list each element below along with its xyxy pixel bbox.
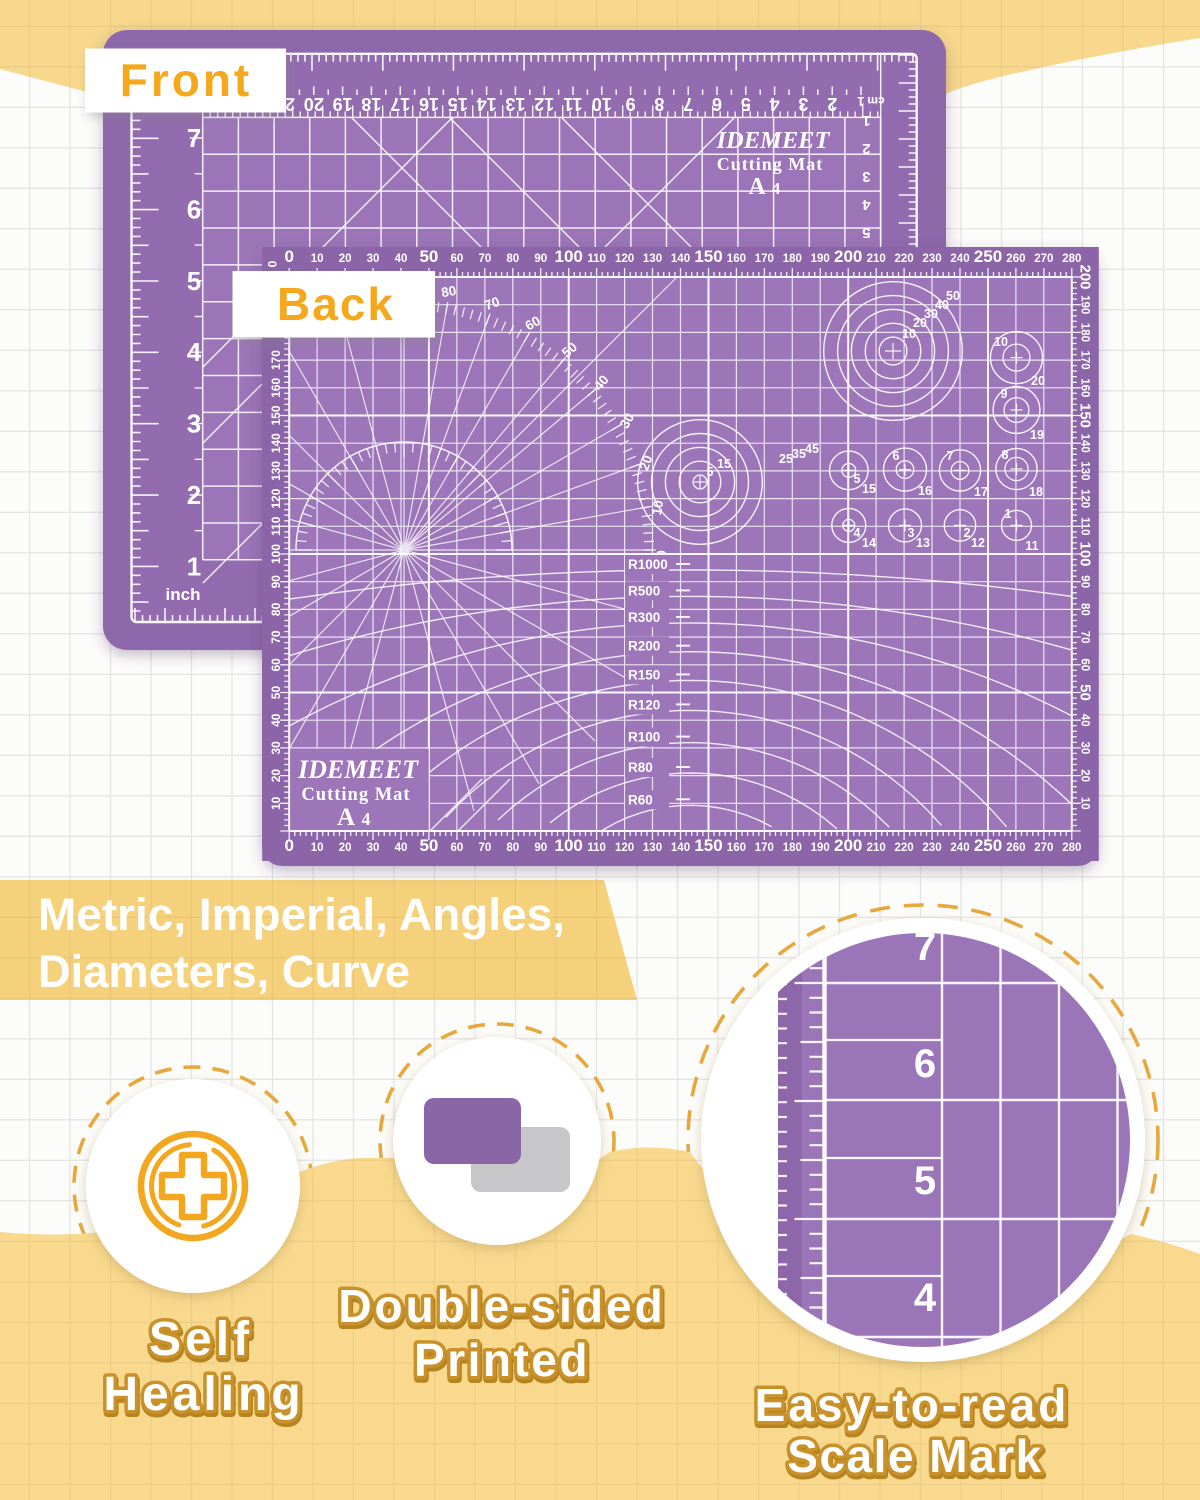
- svg-text:2: 2: [862, 140, 870, 157]
- svg-text:R80: R80: [628, 760, 653, 775]
- svg-text:15: 15: [862, 482, 876, 496]
- svg-text:35: 35: [792, 447, 806, 461]
- svg-text:16: 16: [918, 484, 932, 498]
- svg-text:17: 17: [390, 94, 410, 114]
- svg-text:100: 100: [555, 836, 583, 855]
- svg-text:17: 17: [974, 485, 988, 499]
- svg-text:1: 1: [187, 551, 201, 581]
- svg-text:280: 280: [1062, 842, 1081, 854]
- svg-text:150: 150: [1077, 403, 1094, 428]
- svg-text:130: 130: [269, 461, 283, 481]
- svg-text:130: 130: [643, 253, 662, 265]
- svg-text:7: 7: [683, 94, 693, 114]
- svg-text:20: 20: [339, 253, 352, 265]
- svg-text:30: 30: [1078, 742, 1090, 755]
- svg-text:80: 80: [269, 602, 283, 616]
- svg-text:190: 190: [811, 842, 830, 854]
- svg-text:130: 130: [643, 842, 662, 854]
- svg-text:180: 180: [1078, 323, 1090, 342]
- svg-text:0: 0: [284, 247, 293, 266]
- svg-text:260: 260: [1006, 842, 1025, 854]
- svg-text:40: 40: [269, 713, 283, 727]
- svg-text:210: 210: [867, 253, 886, 265]
- svg-text:5: 5: [914, 1159, 936, 1203]
- svg-text:IDEMEET: IDEMEET: [715, 127, 830, 154]
- svg-text:60: 60: [451, 842, 464, 854]
- svg-text:9: 9: [626, 94, 636, 114]
- svg-text:5: 5: [854, 472, 861, 486]
- svg-text:1: 1: [1005, 507, 1012, 521]
- svg-text:150: 150: [694, 836, 722, 855]
- svg-text:10: 10: [311, 842, 324, 854]
- svg-text:160: 160: [727, 842, 746, 854]
- svg-text:12: 12: [534, 94, 554, 114]
- svg-text:14: 14: [477, 94, 497, 114]
- svg-text:160: 160: [269, 377, 283, 397]
- svg-text:18: 18: [1029, 485, 1043, 499]
- svg-text:A: A: [748, 174, 766, 200]
- svg-text:120: 120: [1078, 489, 1090, 508]
- svg-text:6: 6: [914, 1042, 936, 1086]
- svg-text:170: 170: [269, 350, 283, 370]
- svg-text:60: 60: [451, 253, 464, 265]
- svg-text:70: 70: [1078, 631, 1090, 644]
- svg-text:50: 50: [946, 289, 960, 303]
- svg-text:15: 15: [448, 94, 468, 114]
- svg-text:4: 4: [362, 809, 371, 829]
- svg-text:5: 5: [862, 224, 870, 241]
- svg-text:Self: Self: [149, 1313, 253, 1366]
- svg-text:220: 220: [895, 253, 914, 265]
- svg-text:60: 60: [1078, 658, 1090, 671]
- svg-text:Printed: Printed: [414, 1334, 590, 1386]
- svg-text:180: 180: [783, 253, 802, 265]
- svg-text:80: 80: [440, 283, 457, 300]
- svg-text:20: 20: [1031, 374, 1045, 388]
- svg-text:Front: Front: [120, 54, 253, 106]
- svg-text:250: 250: [974, 836, 1002, 855]
- svg-text:150: 150: [269, 405, 283, 425]
- svg-text:19: 19: [1030, 428, 1044, 442]
- svg-text:170: 170: [755, 253, 774, 265]
- svg-text:R120: R120: [628, 697, 660, 712]
- svg-text:200: 200: [834, 836, 862, 855]
- svg-text:110: 110: [269, 516, 283, 536]
- svg-text:20: 20: [269, 769, 283, 783]
- svg-text:270: 270: [1034, 253, 1053, 265]
- svg-text:R1000: R1000: [628, 557, 668, 572]
- svg-text:130: 130: [1078, 461, 1090, 480]
- svg-text:70: 70: [269, 630, 283, 644]
- svg-text:10: 10: [269, 796, 283, 810]
- svg-text:2: 2: [964, 526, 971, 540]
- svg-text:50: 50: [269, 686, 283, 700]
- svg-text:120: 120: [615, 253, 634, 265]
- svg-text:6: 6: [712, 94, 722, 114]
- svg-text:4: 4: [862, 196, 871, 213]
- svg-text:120: 120: [615, 842, 634, 854]
- svg-text:15: 15: [717, 457, 731, 471]
- svg-text:10: 10: [1078, 797, 1090, 810]
- svg-text:0: 0: [284, 836, 293, 855]
- svg-text:1: 1: [862, 112, 870, 129]
- svg-text:9: 9: [1001, 387, 1008, 401]
- svg-text:10: 10: [592, 94, 612, 114]
- svg-text:4: 4: [772, 179, 781, 198]
- svg-text:190: 190: [1078, 295, 1090, 314]
- svg-text:200: 200: [1077, 264, 1094, 289]
- svg-text:4: 4: [854, 526, 861, 540]
- svg-text:IDEMEET: IDEMEET: [297, 755, 419, 784]
- svg-text:100: 100: [269, 544, 283, 564]
- svg-text:45: 45: [805, 442, 819, 456]
- svg-text:20: 20: [304, 94, 324, 114]
- svg-text:170: 170: [755, 842, 774, 854]
- svg-text:80: 80: [506, 253, 519, 265]
- svg-text:100: 100: [1077, 541, 1094, 566]
- svg-text:1: 1: [857, 94, 864, 109]
- svg-text:220: 220: [895, 842, 914, 854]
- svg-text:Cutting Mat: Cutting Mat: [301, 785, 410, 805]
- svg-text:140: 140: [671, 253, 690, 265]
- svg-text:110: 110: [1078, 517, 1090, 536]
- svg-text:7: 7: [947, 449, 954, 463]
- svg-text:80: 80: [506, 842, 519, 854]
- svg-text:50: 50: [419, 836, 438, 855]
- svg-text:5: 5: [707, 465, 714, 479]
- svg-text:cm: cm: [867, 94, 884, 108]
- svg-text:Diameters, Curve: Diameters, Curve: [38, 946, 410, 997]
- svg-text:190: 190: [811, 253, 830, 265]
- svg-text:260: 260: [1006, 253, 1025, 265]
- svg-text:4: 4: [914, 1276, 937, 1320]
- svg-text:40: 40: [395, 842, 408, 854]
- svg-text:140: 140: [671, 842, 690, 854]
- svg-text:110: 110: [587, 253, 606, 265]
- svg-text:R60: R60: [628, 792, 653, 807]
- svg-text:Back: Back: [277, 278, 395, 330]
- svg-text:A: A: [337, 804, 355, 831]
- svg-text:140: 140: [269, 433, 283, 453]
- svg-text:60: 60: [269, 658, 283, 672]
- svg-text:250: 250: [974, 247, 1002, 266]
- svg-text:160: 160: [727, 253, 746, 265]
- svg-text:80: 80: [1078, 603, 1090, 616]
- svg-text:240: 240: [950, 253, 969, 265]
- svg-text:140: 140: [1078, 434, 1090, 453]
- svg-text:180: 180: [783, 842, 802, 854]
- svg-text:100: 100: [555, 247, 583, 266]
- svg-text:Healing: Healing: [103, 1368, 304, 1421]
- svg-text:50: 50: [419, 247, 438, 266]
- svg-text:160: 160: [1078, 378, 1090, 397]
- svg-text:8: 8: [1002, 448, 1009, 462]
- svg-text:30: 30: [269, 741, 283, 755]
- svg-text:70: 70: [479, 253, 492, 265]
- svg-text:19: 19: [333, 94, 353, 114]
- svg-text:14: 14: [862, 536, 876, 550]
- svg-text:16: 16: [419, 94, 439, 114]
- svg-text:90: 90: [534, 842, 547, 854]
- svg-text:90: 90: [269, 575, 283, 589]
- svg-text:120: 120: [269, 488, 283, 508]
- svg-text:18: 18: [361, 94, 381, 114]
- svg-text:170: 170: [1078, 351, 1090, 370]
- svg-text:25: 25: [779, 452, 793, 466]
- svg-text:12: 12: [971, 536, 985, 550]
- svg-text:R100: R100: [628, 730, 660, 745]
- svg-text:90: 90: [1078, 575, 1090, 588]
- svg-text:Metric, Imperial, Angles,: Metric, Imperial, Angles,: [38, 889, 565, 940]
- svg-text:70: 70: [479, 842, 492, 854]
- svg-text:20: 20: [1078, 769, 1090, 782]
- svg-text:3: 3: [862, 168, 870, 185]
- svg-text:R150: R150: [628, 667, 660, 682]
- svg-text:Double-sided: Double-sided: [338, 1280, 665, 1332]
- svg-text:240: 240: [950, 842, 969, 854]
- svg-text:90: 90: [534, 253, 547, 265]
- svg-text:3: 3: [908, 526, 915, 540]
- svg-text:13: 13: [916, 536, 930, 550]
- svg-text:11: 11: [563, 94, 582, 114]
- svg-text:40: 40: [1078, 714, 1090, 727]
- svg-text:6: 6: [893, 449, 900, 463]
- svg-text:30: 30: [367, 253, 380, 265]
- svg-text:inch: inch: [166, 585, 201, 604]
- svg-text:8: 8: [654, 94, 664, 114]
- svg-text:Cutting Mat: Cutting Mat: [717, 154, 824, 174]
- svg-text:230: 230: [922, 842, 941, 854]
- svg-text:150: 150: [694, 247, 722, 266]
- svg-text:4: 4: [770, 94, 780, 114]
- svg-text:50: 50: [1077, 684, 1094, 701]
- svg-text:R300: R300: [628, 610, 660, 625]
- svg-text:230: 230: [922, 253, 941, 265]
- svg-text:40: 40: [395, 253, 408, 265]
- svg-text:R500: R500: [628, 583, 660, 598]
- svg-text:13: 13: [505, 94, 525, 114]
- svg-text:110: 110: [587, 842, 606, 854]
- svg-text:0: 0: [266, 260, 280, 267]
- svg-text:Scale Mark: Scale Mark: [787, 1430, 1042, 1482]
- svg-text:10: 10: [994, 335, 1008, 349]
- svg-text:Easy-to-read: Easy-to-read: [755, 1379, 1070, 1431]
- svg-text:270: 270: [1034, 842, 1053, 854]
- svg-text:R200: R200: [628, 639, 660, 654]
- svg-text:30: 30: [367, 842, 380, 854]
- svg-text:11: 11: [1025, 539, 1038, 553]
- svg-text:280: 280: [1062, 253, 1081, 265]
- svg-text:10: 10: [311, 253, 324, 265]
- svg-text:210: 210: [867, 842, 886, 854]
- svg-text:200: 200: [834, 247, 862, 266]
- svg-text:20: 20: [339, 842, 352, 854]
